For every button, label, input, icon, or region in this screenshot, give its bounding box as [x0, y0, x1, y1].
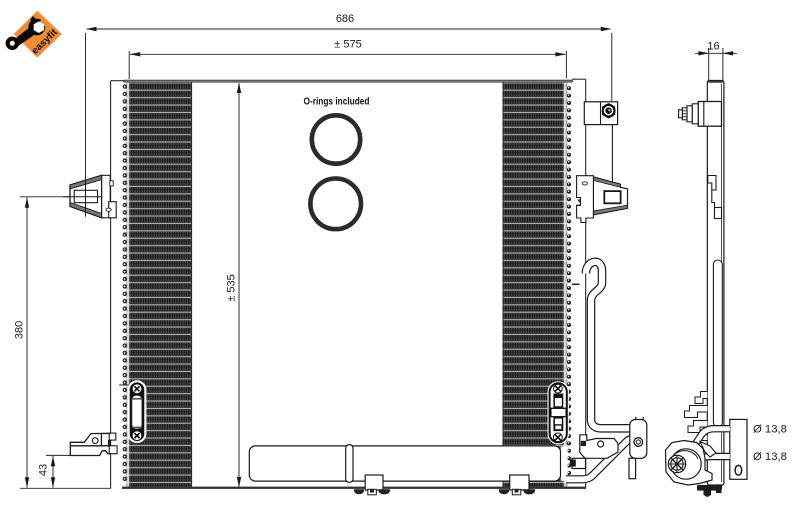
svg-text:Ø 13,8: Ø 13,8: [753, 451, 787, 463]
svg-text:± 535: ± 535: [226, 274, 238, 301]
svg-text:Ø 13,8: Ø 13,8: [753, 424, 787, 436]
svg-text:16: 16: [707, 41, 719, 53]
svg-text:43: 43: [38, 464, 50, 476]
svg-text:380: 380: [14, 321, 26, 339]
svg-text:686: 686: [336, 13, 354, 25]
svg-text:O-rings included: O-rings included: [304, 97, 370, 108]
svg-text:± 575: ± 575: [334, 39, 361, 51]
